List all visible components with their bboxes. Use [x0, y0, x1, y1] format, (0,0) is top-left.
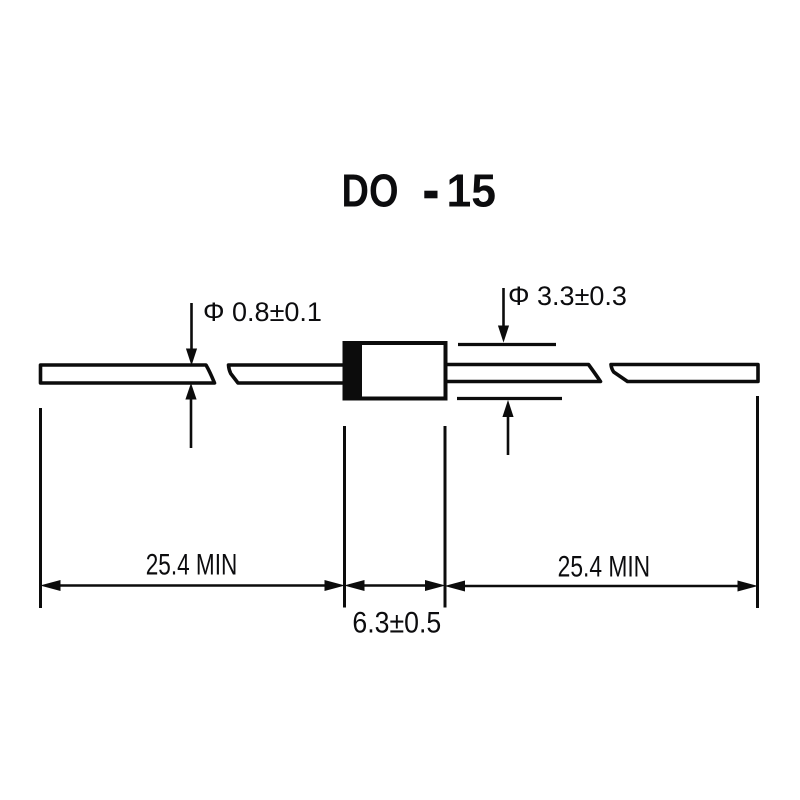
svg-text:Φ 0.8±0.1: Φ 0.8±0.1 — [203, 297, 322, 327]
svg-text:25.4 MIN: 25.4 MIN — [146, 549, 238, 582]
svg-text:25.4 MIN: 25.4 MIN — [558, 551, 651, 584]
svg-text:Φ 3.3±0.3: Φ 3.3±0.3 — [508, 281, 627, 311]
svg-text:15: 15 — [447, 164, 497, 216]
svg-text:DO: DO — [342, 164, 399, 216]
svg-text:6.3±0.5: 6.3±0.5 — [352, 607, 441, 640]
